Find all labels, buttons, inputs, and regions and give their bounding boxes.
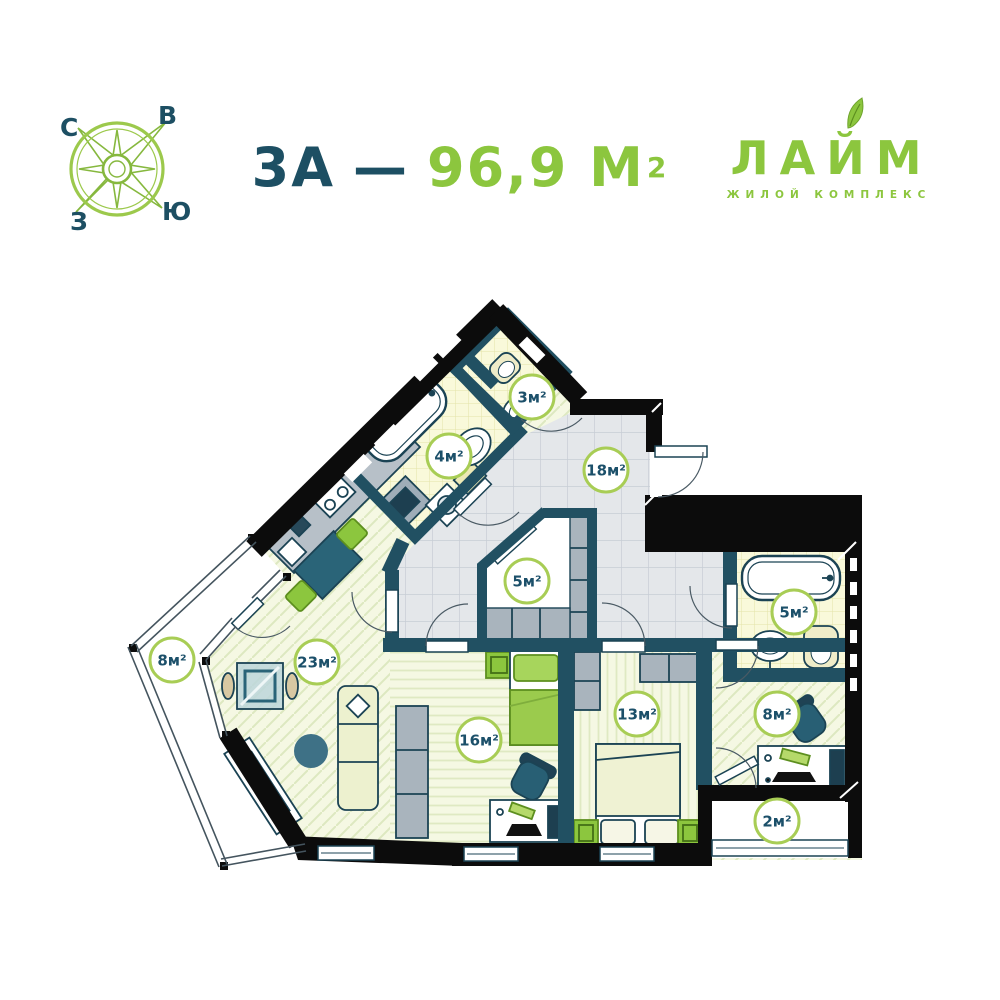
room-label-balcony-right: 2м² xyxy=(754,798,801,845)
room-label-office: 8м² xyxy=(754,691,801,738)
room-label-hallway: 18м² xyxy=(583,447,630,494)
room-label-bedroom-small: 13м² xyxy=(614,691,661,738)
room-label-bedroom-large: 16м² xyxy=(456,717,503,764)
room-label-wardrobe: 5м² xyxy=(504,558,551,605)
room-label-bathroom-main: 5м² xyxy=(771,589,818,636)
page: С В З Ю 3А — 96,9 М 2 ЛАЙМ ЖИЛОЙ КОМПЛЕК… xyxy=(0,0,1000,1000)
room-label-balcony-left: 8м² xyxy=(149,637,196,684)
room-label-living-room: 23м² xyxy=(294,639,341,686)
room-label-bathroom-small: 4м² xyxy=(426,433,473,480)
room-label-toilet: 3м² xyxy=(509,374,556,421)
floor-plan xyxy=(0,0,1000,1000)
